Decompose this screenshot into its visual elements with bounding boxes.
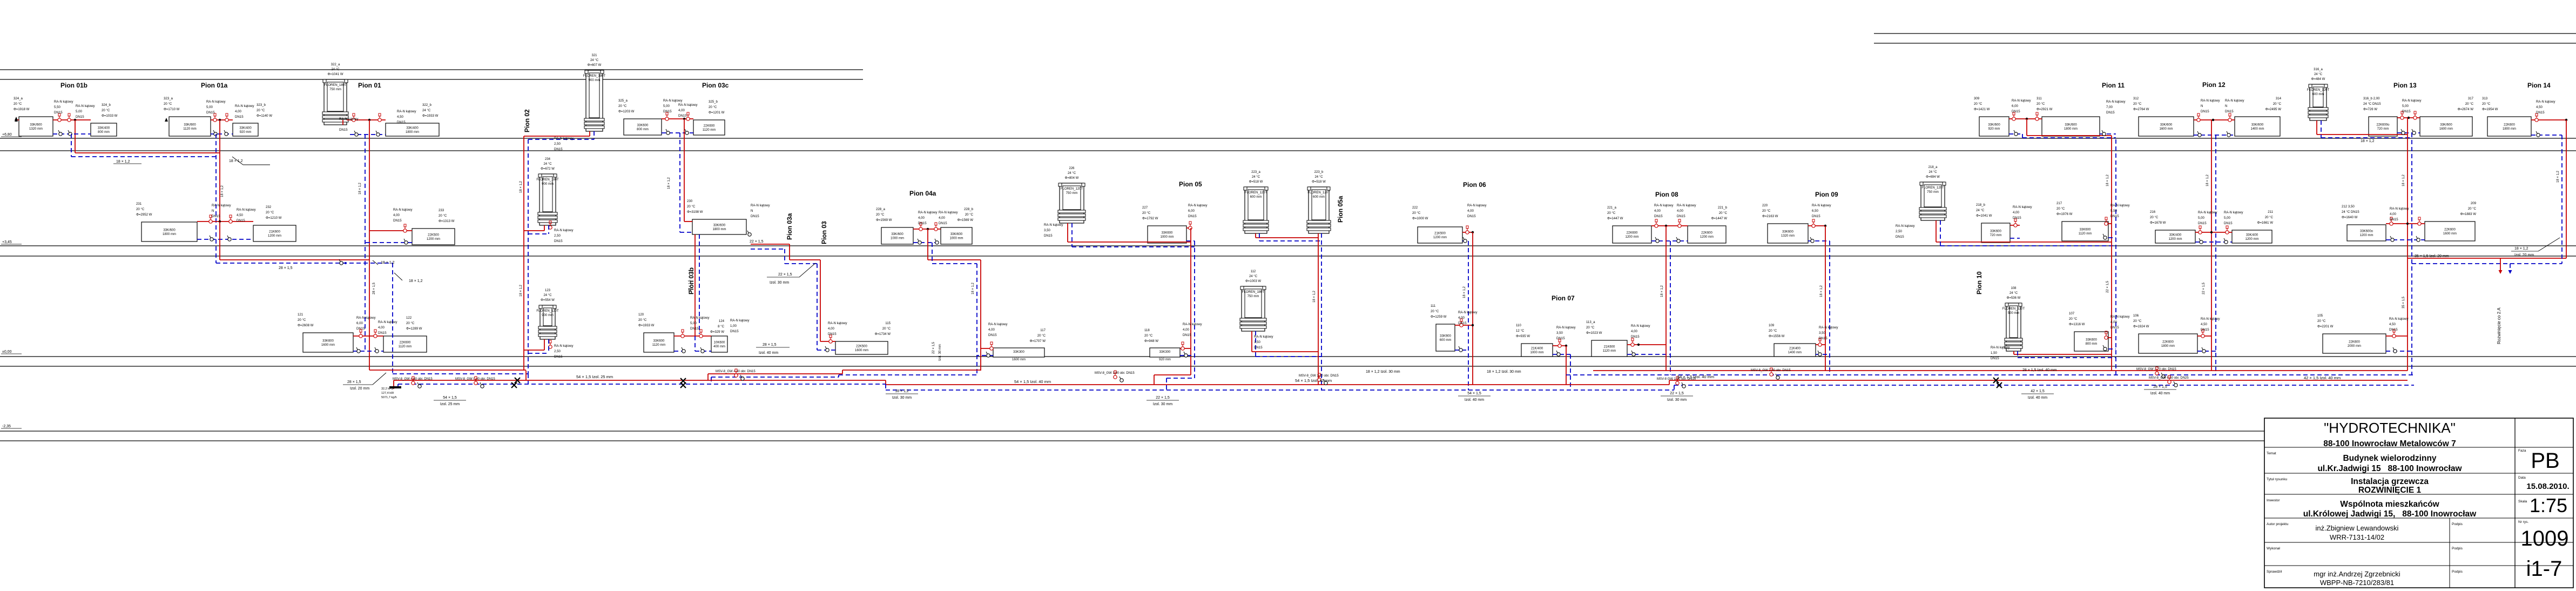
svg-text:33K600: 33K600 (322, 340, 334, 343)
svg-text:Φ=726 W: Φ=726 W (2363, 108, 2377, 111)
svg-text:24 °C: 24 °C (543, 163, 552, 166)
svg-text:FLOREN_180T: FLOREN_180T (536, 178, 559, 182)
svg-text:20 °C: 20 °C (2465, 102, 2474, 106)
svg-text:20 °C: 20 °C (2273, 102, 2282, 106)
svg-text:22K600: 22K600 (400, 341, 411, 345)
svg-text:5,00: 5,00 (76, 110, 82, 113)
svg-text:24 °C: 24 °C (1252, 176, 1260, 179)
svg-text:4,00: 4,00 (1654, 209, 1661, 213)
svg-text:33K/600: 33K/600 (891, 233, 903, 236)
svg-text:28 × 1,5: 28 × 1,5 (2153, 385, 2167, 389)
svg-text:Pion 13: Pion 13 (2393, 82, 2417, 89)
svg-text:RA-N kątowy: RA-N kątowy (1467, 204, 1487, 207)
svg-text:N: N (751, 209, 753, 213)
svg-text:18 × 1,2: 18 × 1,2 (409, 279, 423, 283)
svg-text:33K/600: 33K/600 (713, 224, 726, 227)
svg-text:Autor projektu: Autor projektu (2267, 522, 2289, 526)
svg-text:Φ=1313 W: Φ=1313 W (439, 219, 455, 223)
svg-text:321: 321 (591, 54, 597, 57)
svg-text:1120 mm: 1120 mm (2079, 232, 2092, 236)
svg-text:1600 mm: 1600 mm (2439, 127, 2453, 131)
svg-text:Faza: Faza (2518, 449, 2526, 453)
svg-text:1200 mm: 1200 mm (1625, 236, 1638, 239)
svg-text:54 × 1,5 Izol. 40 mm: 54 × 1,5 Izol. 40 mm (1014, 379, 1051, 384)
svg-text:RA-N kątowy: RA-N kątowy (356, 316, 376, 320)
svg-text:109: 109 (1769, 324, 1775, 327)
svg-text:RA-N kątowy: RA-N kątowy (2201, 317, 2221, 321)
svg-text:20 °C: 20 °C (2133, 102, 2142, 106)
svg-text:22K500: 22K500 (428, 234, 439, 237)
svg-text:Pion 14: Pion 14 (2527, 82, 2551, 89)
svg-text:FLOREN_120T: FLOREN_120T (1921, 186, 1944, 190)
svg-text:RA-N kątowy: RA-N kątowy (1677, 204, 1697, 207)
svg-text:18 × 1,2: 18 × 1,2 (667, 177, 671, 189)
svg-text:121: 121 (298, 313, 304, 317)
svg-text:28 × 1,5: 28 × 1,5 (689, 279, 692, 292)
svg-text:ROZWINIĘCIE 1: ROZWINIĘCIE 1 (2358, 486, 2422, 495)
svg-text:FLOREN_180T: FLOREN_180T (324, 84, 347, 87)
svg-text:110: 110 (1516, 324, 1521, 327)
svg-text:6,00: 6,00 (356, 321, 363, 325)
svg-text:WRR-7131-14/02: WRR-7131-14/02 (2330, 533, 2384, 541)
svg-text:42 × 1,5 Izol. 40 mm: 42 × 1,5 Izol. 40 mm (2304, 375, 2341, 380)
svg-text:Φ=1289 W: Φ=1289 W (406, 327, 422, 331)
svg-text:Pion 12: Pion 12 (2202, 81, 2226, 89)
svg-text:Izol. 40 mm: Izol. 40 mm (2150, 392, 2170, 395)
svg-text:RA-N kątowy: RA-N kątowy (2013, 205, 2033, 209)
svg-text:20 °C: 20 °C (1769, 329, 1777, 333)
svg-text:322_b: 322_b (422, 103, 432, 107)
svg-text:1000 mm: 1000 mm (1160, 236, 1174, 239)
svg-text:33K/600: 33K/600 (1988, 124, 2000, 127)
svg-text:20 °C: 20 °C (687, 205, 696, 209)
svg-text:33K/600: 33K/600 (30, 124, 42, 127)
svg-text:Φ=1710 W: Φ=1710 W (164, 108, 180, 111)
svg-text:WBPP-NB-7210/283/81: WBPP-NB-7210/283/81 (2320, 579, 2394, 587)
svg-text:DN15: DN15 (554, 355, 563, 359)
svg-text:4,00: 4,00 (988, 328, 995, 332)
svg-text:DN15: DN15 (206, 111, 215, 115)
svg-text:18 × 1,2 Izol. 30 mm: 18 × 1,2 Izol. 30 mm (1487, 370, 1521, 374)
svg-text:Pion 01a: Pion 01a (201, 82, 228, 89)
svg-text:1800 mm: 1800 mm (2161, 345, 2175, 348)
svg-text:RA-N kątowy: RA-N kątowy (237, 208, 257, 212)
svg-text:Φ=1003 W: Φ=1003 W (1245, 280, 1261, 283)
svg-text:RA-N kątowy: RA-N kątowy (918, 211, 938, 214)
svg-text:33K600: 33K600 (1782, 231, 1793, 234)
svg-text:22 × 1,5: 22 × 1,5 (778, 273, 792, 277)
svg-text:RA-N kątowy: RA-N kątowy (1183, 323, 1203, 326)
svg-text:750 mm: 750 mm (1247, 295, 1259, 298)
svg-text:317: 317 (2468, 97, 2474, 100)
svg-text:3,50: 3,50 (1254, 340, 1260, 344)
svg-text:4,50: 4,50 (397, 115, 403, 119)
svg-text:Pion 03: Pion 03 (820, 221, 828, 244)
svg-text:314: 314 (2276, 97, 2282, 100)
svg-text:20 °C: 20 °C (1607, 211, 1616, 215)
svg-text:Φ=2163 W: Φ=2163 W (1762, 214, 1778, 218)
svg-text:20 °C: 20 °C (136, 207, 145, 211)
svg-text:33K/600: 33K/600 (2160, 124, 2173, 127)
svg-text:21K600: 21K600 (1604, 346, 1615, 349)
svg-text:33K600: 33K600 (2080, 229, 2091, 232)
svg-text:Pion 10: Pion 10 (1975, 271, 1983, 294)
svg-text:33K/400: 33K/400 (2169, 234, 2182, 237)
svg-text:20 °C: 20 °C (1762, 209, 1771, 213)
svg-text:Izol. 25 mm: Izol. 25 mm (440, 402, 460, 406)
svg-text:Temat: Temat (2267, 452, 2276, 455)
svg-text:Φ=948 W: Φ=948 W (1144, 339, 1158, 343)
svg-text:Φ=1041 W: Φ=1041 W (328, 73, 343, 76)
svg-text:N: N (2225, 104, 2227, 108)
svg-text:24 °C: 24 °C (1976, 209, 1985, 212)
svg-text:28 × 1,5: 28 × 1,5 (763, 343, 777, 347)
svg-text:Φ=1678 W: Φ=1678 W (2150, 221, 2166, 225)
svg-text:18 × 1,2: 18 × 1,2 (229, 159, 243, 163)
svg-text:Φ=484 W: Φ=484 W (2311, 78, 2325, 81)
svg-text:111: 111 (1431, 304, 1436, 308)
svg-text:RA-N kątowy: RA-N kątowy (554, 229, 574, 232)
svg-text:Φ=518 W: Φ=518 W (1249, 180, 1263, 184)
svg-text:324_b: 324_b (102, 103, 111, 107)
svg-text:20 °C: 20 °C (1431, 310, 1439, 313)
svg-text:Φ=1569 W: Φ=1569 W (957, 218, 974, 222)
svg-text:Φ=1933 W: Φ=1933 W (422, 114, 439, 118)
svg-text:4,00: 4,00 (235, 110, 241, 113)
svg-text:54 × 1,5 Izol. 25 mm: 54 × 1,5 Izol. 25 mm (576, 374, 613, 379)
svg-text:Φ=329 W: Φ=329 W (710, 330, 724, 334)
svg-text:750 mm: 750 mm (1066, 192, 1078, 195)
svg-text:Φ=2921 W: Φ=2921 W (2036, 108, 2053, 111)
svg-text:4,00: 4,00 (393, 213, 400, 217)
svg-text:DN15: DN15 (2012, 110, 2020, 113)
svg-text:4,50: 4,50 (2536, 105, 2543, 109)
svg-text:RA-N kątowy: RA-N kątowy (828, 321, 848, 325)
svg-text:Pion 06: Pion 06 (1463, 181, 1486, 189)
svg-text:RA-N kątowy: RA-N kątowy (1631, 324, 1651, 328)
svg-text:DN15: DN15 (554, 147, 563, 151)
svg-text:33K600: 33K600 (637, 124, 649, 127)
svg-text:ul.Królowej Jadwigi 15, 88-1: ul.Królowej Jadwigi 15, 88-100 Inowrocła… (2303, 509, 2477, 519)
svg-text:28 × 1,5 Izol. 40 mm: 28 × 1,5 Izol. 40 mm (2022, 368, 2057, 372)
svg-text:218_b: 218_b (1976, 203, 1986, 207)
svg-text:18 × 1,2: 18 × 1,2 (520, 284, 523, 297)
svg-text:4,50: 4,50 (237, 213, 243, 217)
svg-text:RA-N kątowy: RA-N kątowy (2110, 315, 2130, 319)
svg-text:5071,7 kg/h: 5071,7 kg/h (381, 396, 397, 399)
svg-text:4,00: 4,00 (828, 327, 834, 331)
svg-text:900 mm: 900 mm (589, 79, 601, 82)
svg-text:20 °C: 20 °C (876, 213, 885, 217)
svg-text:122: 122 (406, 316, 412, 320)
svg-text:Φ=1033 W: Φ=1033 W (102, 114, 118, 118)
svg-text:DN15: DN15 (1991, 357, 1999, 360)
svg-text:33K/600: 33K/600 (950, 233, 963, 236)
svg-text:Izol. 30 mm: Izol. 30 mm (892, 396, 912, 400)
svg-text:24 °C: 24 °C (2009, 292, 2018, 295)
svg-text:105: 105 (2317, 314, 2323, 318)
svg-text:-2,35: -2,35 (2, 425, 11, 428)
svg-text:800 mm: 800 mm (2086, 342, 2098, 346)
svg-text:RA-N kątowy: RA-N kątowy (1044, 223, 1064, 227)
svg-text:5,50: 5,50 (2110, 209, 2117, 213)
svg-text:18 × 1,2: 18 × 1,2 (359, 182, 362, 194)
svg-text:20 °C: 20 °C (266, 211, 274, 214)
svg-text:DN15: DN15 (2106, 111, 2115, 115)
svg-text:24 °C DN15: 24 °C DN15 (2363, 102, 2381, 106)
svg-text:113_a: 113_a (1586, 320, 1595, 324)
svg-text:316_a: 316_a (2314, 68, 2323, 71)
svg-text:1800 mm: 1800 mm (712, 228, 726, 231)
svg-text:234: 234 (545, 158, 551, 161)
svg-text:1400 mm: 1400 mm (1788, 351, 1802, 354)
svg-text:20 °C: 20 °C (965, 213, 974, 217)
svg-text:6,50: 6,50 (1812, 209, 1818, 213)
svg-text:20 °C: 20 °C (2468, 207, 2477, 211)
svg-text:20 °C: 20 °C (618, 104, 627, 108)
svg-text:107: 107 (2069, 312, 2075, 315)
svg-text:DN15: DN15 (1044, 234, 1053, 238)
svg-text:DN15: DN15 (2201, 328, 2209, 332)
svg-text:22K600: 22K600 (2162, 341, 2174, 344)
svg-text:2,50: 2,50 (1896, 230, 1902, 233)
svg-text:20 °C: 20 °C (2482, 102, 2491, 106)
svg-text:232: 232 (266, 205, 272, 209)
svg-text:DN15: DN15 (2110, 326, 2119, 330)
svg-text:DN15: DN15 (1254, 346, 1263, 350)
svg-text:4,00: 4,00 (1631, 330, 1637, 333)
svg-text:18 × 1,2: 18 × 1,2 (2361, 139, 2375, 143)
svg-text:21K/400: 21K/400 (1531, 347, 1543, 351)
svg-text:RA-N kątowy: RA-N kątowy (730, 319, 750, 323)
svg-text:20 °C: 20 °C (1719, 211, 1728, 215)
svg-text:20 °C: 20 °C (2133, 319, 2142, 323)
svg-text:N: N (2201, 104, 2203, 108)
svg-text:18 × 1,2: 18 × 1,2 (1661, 285, 1664, 297)
svg-text:Φ=1023 W: Φ=1023 W (1586, 331, 1602, 335)
svg-text:RA-N kątowy: RA-N kątowy (76, 104, 96, 108)
svg-text:Φ=1792 W: Φ=1792 W (1142, 217, 1158, 220)
svg-text:115: 115 (885, 321, 891, 325)
svg-text:Φ=804 W: Φ=804 W (1065, 177, 1079, 180)
svg-text:324_a: 324_a (14, 97, 23, 100)
svg-text:18 × 1,2: 18 × 1,2 (2206, 174, 2209, 186)
svg-text:RA-N kątowy: RA-N kątowy (393, 208, 413, 212)
svg-text:24 °C DN15: 24 °C DN15 (2342, 210, 2359, 214)
svg-text:20 °C: 20 °C (14, 102, 22, 106)
svg-text:325_b: 325_b (709, 100, 718, 104)
svg-text:Φ=2201 W: Φ=2201 W (2317, 325, 2334, 328)
svg-text:28 × 1,5: 28 × 1,5 (373, 282, 376, 294)
svg-text:DN15: DN15 (1896, 235, 1904, 239)
svg-text:RA-N kątowy: RA-N kątowy (1458, 311, 1478, 314)
svg-text:RA-N kątowy: RA-N kątowy (2389, 317, 2409, 321)
svg-text:20 °C: 20 °C (1142, 211, 1151, 215)
svg-text:20 °C: 20 °C (2265, 216, 2274, 219)
svg-text:226: 226 (1069, 167, 1075, 170)
svg-text:4,00: 4,00 (1458, 316, 1465, 320)
svg-text:Izol. 40 mm: Izol. 40 mm (759, 351, 778, 355)
svg-text:33K/400: 33K/400 (239, 127, 252, 130)
svg-text:DN15: DN15 (730, 330, 739, 333)
svg-text:1000 mm: 1000 mm (891, 237, 904, 240)
svg-text:DN15: DN15 (2198, 221, 2207, 225)
svg-text:Φ=1140 W: Φ=1140 W (257, 114, 272, 118)
svg-text:20 °C: 20 °C (2317, 319, 2326, 323)
svg-text:Φ=1924 W: Φ=1924 W (2133, 325, 2149, 328)
svg-text:228_a: 228_a (876, 207, 886, 211)
svg-text:600 mm: 600 mm (1313, 196, 1325, 199)
svg-text:20 °C: 20 °C (1974, 102, 1982, 106)
svg-text:1200 mm: 1200 mm (427, 238, 440, 241)
svg-text:24 °C: 24 °C (1249, 275, 1258, 278)
svg-text:33K/600: 33K/600 (2251, 124, 2264, 127)
svg-text:Pion 07: Pion 07 (1552, 294, 1575, 302)
svg-text:2000 mm: 2000 mm (2348, 345, 2361, 348)
svg-text:312: 312 (2133, 97, 2139, 100)
svg-text:20 °C: 20 °C (1586, 326, 1595, 330)
svg-text:24 °C: 24 °C (2314, 73, 2323, 76)
svg-text:DN15: DN15 (1812, 214, 1820, 218)
svg-text:Podpis: Podpis (2452, 547, 2463, 550)
svg-text:Φ=1041 W: Φ=1041 W (1976, 214, 1992, 218)
svg-text:DN15: DN15 (1188, 214, 1197, 218)
svg-text:Sprawdził: Sprawdził (2267, 570, 2282, 574)
svg-text:54 × 1,5: 54 × 1,5 (443, 396, 457, 400)
svg-text:Izol. 20 mm: Izol. 20 mm (350, 387, 369, 391)
svg-text:22K500: 22K500 (856, 345, 867, 348)
svg-text:3,50: 3,50 (1556, 331, 1563, 335)
svg-text:Φ=536 W: Φ=536 W (2007, 297, 2021, 300)
svg-text:RA-N kątowy: RA-N kątowy (339, 117, 359, 121)
svg-text:1320 mm: 1320 mm (29, 127, 43, 131)
svg-text:211: 211 (2268, 210, 2273, 214)
svg-text:Pion 04a: Pion 04a (909, 190, 936, 197)
svg-text:900 mm: 900 mm (542, 314, 554, 317)
svg-text:DN15: DN15 (1819, 337, 1828, 340)
svg-text:DN15: DN15 (751, 214, 759, 218)
svg-text:24 °C: 24 °C (1314, 176, 1323, 179)
svg-text:RA-N kątowy: RA-N kątowy (663, 99, 683, 103)
svg-text:35 × 1,5: 35 × 1,5 (2402, 296, 2405, 308)
svg-text:1000 mm: 1000 mm (1530, 351, 1543, 354)
svg-text:Φ=554 W: Φ=554 W (541, 299, 555, 302)
svg-text:22K600: 22K600 (2444, 229, 2456, 232)
svg-text:RA-N kątowy: RA-N kątowy (2201, 99, 2221, 103)
svg-text:1,50: 1,50 (1991, 351, 1997, 355)
svg-text:2,50: 2,50 (554, 234, 561, 238)
svg-text:5,00: 5,00 (2198, 216, 2204, 220)
svg-text:1800 mm: 1800 mm (2503, 127, 2516, 131)
svg-text:1000 mm: 1000 mm (949, 237, 963, 240)
svg-text:28 × 1,5: 28 × 1,5 (347, 380, 361, 384)
svg-text:112: 112 (1251, 270, 1256, 273)
svg-text:22 × 1,5: 22 × 1,5 (1156, 396, 1170, 400)
svg-text:+6,80: +6,80 (2, 133, 12, 137)
svg-text:5,00: 5,00 (690, 321, 697, 325)
svg-text:33K900: 33K900 (1440, 335, 1451, 338)
svg-text:DN15: DN15 (918, 221, 927, 225)
svg-text:32,2 kPa: 32,2 kPa (381, 387, 394, 391)
svg-text:RA-N kątowy: RA-N kątowy (988, 323, 1008, 326)
svg-text:FLOREN_180T: FLOREN_180T (1242, 291, 1265, 294)
svg-text:Pion 03c: Pion 03c (702, 82, 729, 89)
svg-text:1120 mm: 1120 mm (703, 129, 716, 132)
svg-text:223_a: 223_a (1251, 171, 1260, 174)
svg-text:20 °C: 20 °C (2036, 102, 2045, 106)
svg-text:600 mm: 600 mm (2312, 93, 2324, 96)
svg-text:1800 mm: 1800 mm (2064, 127, 2078, 131)
svg-text:20 °C: 20 °C (102, 109, 110, 112)
svg-text:Inwestor: Inwestor (2267, 499, 2280, 502)
svg-text:228_b: 228_b (964, 207, 974, 211)
svg-text:750 mm: 750 mm (1927, 191, 1939, 194)
svg-text:311: 311 (2036, 97, 2042, 100)
svg-text:750 mm: 750 mm (329, 88, 341, 91)
svg-text:18 × 1,2: 18 × 1,2 (381, 261, 395, 265)
svg-text:DN15: DN15 (2389, 328, 2398, 332)
svg-text:Budynek wielorodzinny: Budynek wielorodzinny (2343, 454, 2436, 463)
svg-text:22K600: 22K600 (2504, 124, 2515, 127)
svg-text:Φ=1569 W: Φ=1569 W (876, 218, 892, 222)
svg-text:209: 209 (2471, 202, 2477, 205)
svg-text:DN15: DN15 (1467, 214, 1476, 218)
svg-text:222: 222 (1412, 206, 1418, 210)
svg-text:600 mm: 600 mm (1440, 339, 1452, 342)
svg-text:Pion 05: Pion 05 (1179, 180, 1202, 188)
svg-text:DN15: DN15 (2013, 216, 2021, 220)
svg-text:Φ=1918 W: Φ=1918 W (14, 108, 30, 111)
svg-text:Izol. 40 mm: Izol. 40 mm (1465, 398, 1484, 402)
svg-text:33K/400: 33K/400 (406, 127, 419, 130)
svg-text:DN15: DN15 (393, 219, 402, 223)
svg-text:18 × 1,2: 18 × 1,2 (2514, 247, 2528, 251)
svg-text:Wspólnota mieszkańców: Wspólnota mieszkańców (2340, 500, 2439, 509)
svg-text:230: 230 (687, 199, 693, 203)
svg-text:RA-N kątowy: RA-N kątowy (554, 137, 574, 140)
svg-text:4,00: 4,00 (918, 216, 925, 220)
svg-text:5,00: 5,00 (206, 105, 213, 109)
svg-text:1120 mm: 1120 mm (652, 344, 666, 347)
svg-text:Φ=3198 W: Φ=3198 W (687, 210, 703, 214)
svg-text:900 mm: 900 mm (542, 183, 554, 186)
svg-text:DN15: DN15 (554, 239, 563, 243)
svg-text:DN15: DN15 (678, 114, 687, 118)
svg-text:5,00: 5,00 (2402, 104, 2409, 108)
svg-text:RA-N kątowy: RA-N kątowy (54, 100, 74, 104)
svg-text:FLOREN_120T: FLOREN_120T (1245, 191, 1267, 194)
svg-text:RA-N kątowy: RA-N kątowy (2110, 204, 2130, 207)
svg-text:Φ=1640 W: Φ=1640 W (2342, 216, 2358, 219)
svg-text:Φ=2495 W: Φ=2495 W (2265, 108, 2282, 111)
svg-text:231: 231 (136, 202, 142, 206)
svg-text:108: 108 (2011, 287, 2017, 290)
svg-text:88-100 Inowrocław Metalowców 7: 88-100 Inowrocław Metalowców 7 (2323, 439, 2456, 448)
svg-text:DN15: DN15 (212, 214, 220, 218)
svg-text:DN15: DN15 (939, 221, 947, 225)
svg-text:18 × 1,2: 18 × 1,2 (972, 282, 975, 294)
svg-text:217: 217 (2056, 202, 2062, 205)
svg-text:N: N (212, 209, 214, 213)
svg-text:Podpis: Podpis (2452, 522, 2463, 526)
svg-text:33K/400: 33K/400 (98, 127, 110, 130)
svg-text:22K600: 22K600 (1627, 232, 1638, 235)
svg-text:20 °C: 20 °C (406, 321, 415, 325)
svg-text:33K300: 33K300 (1159, 351, 1171, 354)
svg-text:Φ=1203 W: Φ=1203 W (618, 110, 635, 113)
svg-text:1200 mm: 1200 mm (2245, 238, 2258, 241)
svg-text:1200 mm: 1200 mm (1700, 236, 1714, 239)
